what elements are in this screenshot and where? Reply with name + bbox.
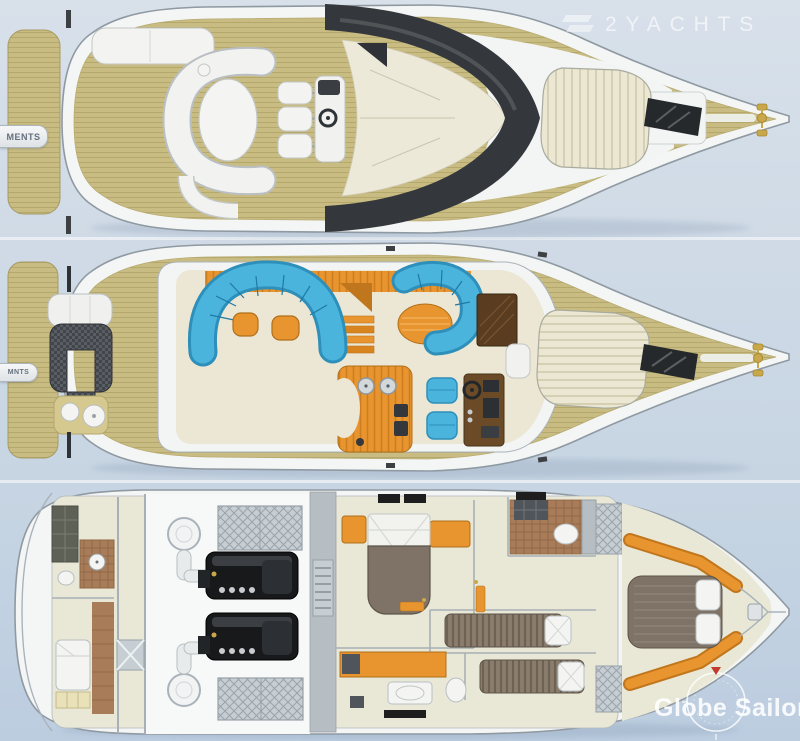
engine-fitting: [198, 636, 210, 654]
door-handle: [422, 598, 426, 602]
nightstand: [430, 521, 470, 547]
nightstand: [342, 516, 366, 543]
side-label-flybridge: MENTS: [0, 125, 48, 148]
cleat: [538, 251, 548, 257]
triple-sun-loungers: [278, 82, 318, 158]
bow-sunpad: [537, 310, 649, 408]
cleat: [386, 246, 395, 251]
side-label-main-deck: MNTS: [0, 363, 38, 382]
master-bed-duvet: [368, 514, 430, 548]
pillow: [696, 580, 720, 610]
exhaust-muffler: [168, 674, 200, 706]
coffee-table: [272, 316, 299, 340]
table-pedestal: [198, 64, 210, 76]
helm-console: [464, 374, 504, 446]
crew-toilet: [58, 571, 74, 585]
deck-hatch-cross: [117, 640, 144, 670]
guest-cabinet: [582, 500, 596, 554]
yacht-deck-plans-image: MENTS MNTS 2YACHTS Globe Sailor: [0, 0, 800, 741]
hull-window: [378, 494, 400, 503]
door-threshold: [476, 586, 485, 612]
exhaust-muffler: [168, 518, 200, 550]
anchor-windlass: [753, 344, 763, 376]
watermark-globesailor: Globe Sailor: [646, 684, 800, 740]
side-label-text: MNTS: [8, 369, 29, 376]
deck-separator: [0, 480, 800, 483]
davit-post: [67, 432, 71, 458]
hull-window: [404, 494, 426, 503]
engine-starboard: [206, 613, 298, 660]
deck-plan-drawing: [0, 0, 800, 741]
locker-hatch: [596, 666, 622, 712]
door-threshold: [400, 602, 424, 611]
crew-berth: [56, 640, 90, 690]
coffee-table: [233, 313, 258, 336]
anchor-locker: [748, 604, 762, 620]
swim-platform: [8, 30, 60, 214]
helm-station: [315, 76, 345, 162]
watermark-text: Globe Sailor: [654, 694, 800, 723]
double-wave-flag-icon: [560, 13, 594, 37]
main-deck-plan: [8, 243, 789, 478]
cleat: [386, 463, 395, 468]
watermark-text: 2YACHTS: [605, 13, 762, 37]
cocktail-table: [199, 79, 257, 161]
side-label-text: MENTS: [7, 132, 41, 142]
galley: [328, 366, 412, 452]
bath-toilet: [446, 678, 466, 702]
engine-fitting: [198, 570, 210, 588]
bath-sink: [388, 682, 432, 704]
guest-sink: [554, 524, 578, 544]
pillow: [696, 614, 720, 644]
staircase: [310, 492, 336, 732]
guest-bathroom: [510, 492, 596, 554]
locker-hatch: [596, 504, 622, 554]
engine-port: [206, 552, 298, 599]
door-handle: [474, 580, 478, 584]
flybridge-deck-plan: [8, 4, 789, 238]
hull-window: [516, 492, 546, 500]
cockpit-cushion: [48, 294, 112, 327]
anchor-windlass: [757, 104, 767, 136]
bow-centerline: [704, 114, 756, 122]
davit-post: [66, 10, 71, 28]
companion-seat: [506, 344, 530, 378]
davit-post: [67, 266, 71, 292]
bow-centerline: [700, 354, 754, 362]
watermark-2yachts: 2YACHTS: [560, 13, 762, 37]
hull-window: [384, 710, 426, 718]
davit-post: [66, 216, 71, 234]
crew-cabinet: [56, 692, 90, 708]
bow-sunpad: [541, 68, 651, 169]
cockpit-seat: [61, 403, 79, 421]
